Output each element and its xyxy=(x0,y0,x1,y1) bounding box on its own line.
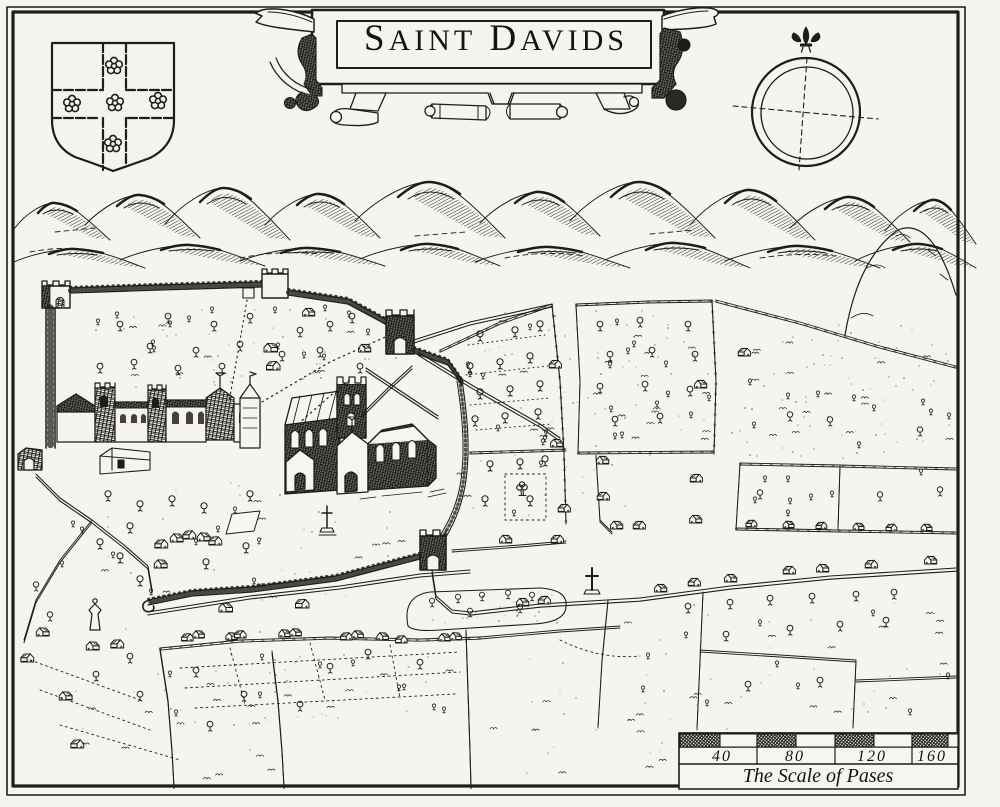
svg-text:40: 40 xyxy=(712,748,732,765)
svg-text:SAINT DAVIDS: SAINT DAVIDS xyxy=(364,18,628,59)
svg-text:160: 160 xyxy=(917,748,947,765)
svg-text:120: 120 xyxy=(857,748,887,765)
svg-text:80: 80 xyxy=(785,748,805,765)
svg-text:The Scale of Pases: The Scale of Pases xyxy=(743,765,894,787)
